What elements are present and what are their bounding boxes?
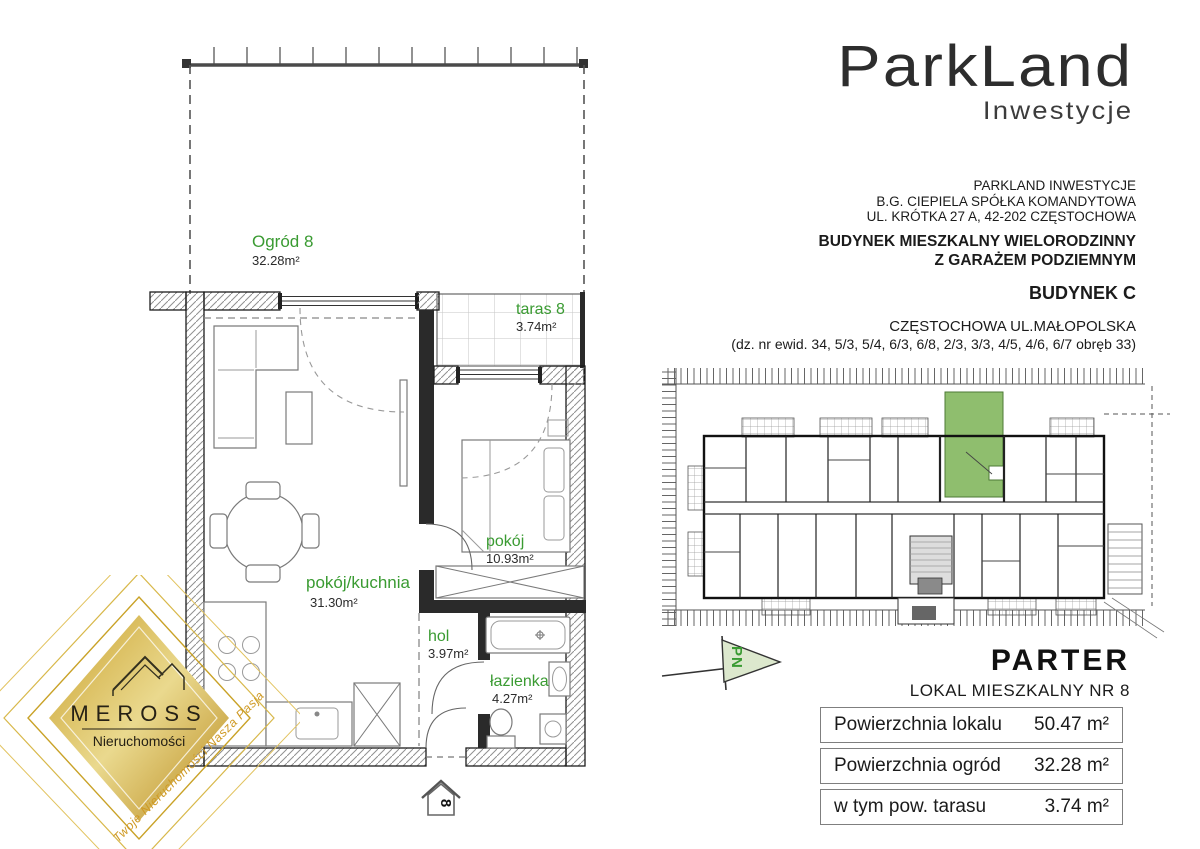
building-type-line2: Z GARAŻEM PODZIEMNYM (596, 251, 1136, 270)
entrance-marker: 8 (422, 781, 460, 815)
floor-name: PARTER (910, 644, 1130, 678)
table-row: Powierzchnia ogród 32.28 m² (820, 748, 1123, 784)
room-area: 31.30m² (310, 595, 358, 610)
floorplan-offer-page: 8 Ogród 8 32.28m² taras 8 3.74m² pokój/k… (0, 0, 1200, 849)
compass-label: PN (728, 646, 745, 669)
area-value: 32.28 m² (1034, 755, 1109, 777)
developer-address: UL. KRÓTKA 27 A, 42-202 CZĘSTOCHOWA (596, 209, 1136, 225)
room-label: łazienka (490, 673, 549, 690)
bedroom-furniture (436, 420, 584, 598)
brand-header: ParkLand Inwestycje (869, 38, 1133, 125)
table-row: Powierzchnia lokalu 50.47 m² (820, 707, 1123, 743)
room-label: hol (428, 628, 449, 645)
area-value: 3.74 m² (1045, 796, 1109, 818)
room-area: 3.97m² (428, 646, 469, 661)
room-area: 4.27m² (492, 691, 533, 706)
room-label: pokój/kuchnia (306, 573, 411, 592)
building-type-line1: BUDYNEK MIESZKALNY WIELORODZINNY (596, 232, 1136, 251)
area-label: Powierzchnia ogród (834, 755, 1001, 777)
building-overview-plan (652, 356, 1180, 648)
floor-title-block: PARTER LOKAL MIESZKALNY NR 8 (910, 644, 1130, 701)
building-location: CZĘSTOCHOWA UL.MAŁOPOLSKA (596, 318, 1136, 335)
room-area: 32.28m² (252, 253, 300, 268)
meross-subtitle: Nieruchomości (93, 733, 186, 749)
meross-name: MEROSS (70, 701, 207, 726)
developer-name: PARKLAND INWESTYCJE (596, 178, 1136, 194)
parkland-logo: ParkLand (837, 38, 1133, 96)
table-row: w tym pow. tarasu 3.74 m² (820, 789, 1123, 825)
garden-fence (182, 47, 588, 294)
areas-table: Powierzchnia lokalu 50.47 m² Powierzchni… (820, 707, 1123, 830)
area-value: 50.47 m² (1034, 714, 1109, 736)
room-label: taras 8 (516, 301, 565, 318)
room-label: Ogród 8 (252, 232, 313, 251)
highlighted-unit (945, 392, 1003, 497)
living-room-furniture (210, 326, 407, 582)
parkland-logo-subtitle: Inwestycje (842, 98, 1133, 125)
room-label: pokój (486, 533, 524, 550)
entrance-number: 8 (437, 799, 454, 807)
plot-numbers: (dz. nr ewid. 34, 5/3, 5/4, 6/3, 6/8, 2/… (596, 336, 1136, 353)
north-arrow: PN (660, 630, 790, 710)
developer-info: PARKLAND INWESTYCJE B.G. CIEPIELA SPÓŁKA… (596, 178, 1136, 353)
room-area: 10.93m² (486, 551, 534, 566)
meross-watermark: MEROSS Nieruchomości Twoje Nieruchomości… (0, 575, 300, 849)
building-name: BUDYNEK C (596, 283, 1136, 304)
developer-company: B.G. CIEPIELA SPÓŁKA KOMANDYTOWA (596, 194, 1136, 210)
room-area: 3.74m² (516, 319, 557, 334)
unit-name: LOKAL MIESZKALNY NR 8 (910, 681, 1130, 701)
area-label: Powierzchnia lokalu (834, 714, 1002, 736)
area-label: w tym pow. tarasu (834, 796, 986, 818)
